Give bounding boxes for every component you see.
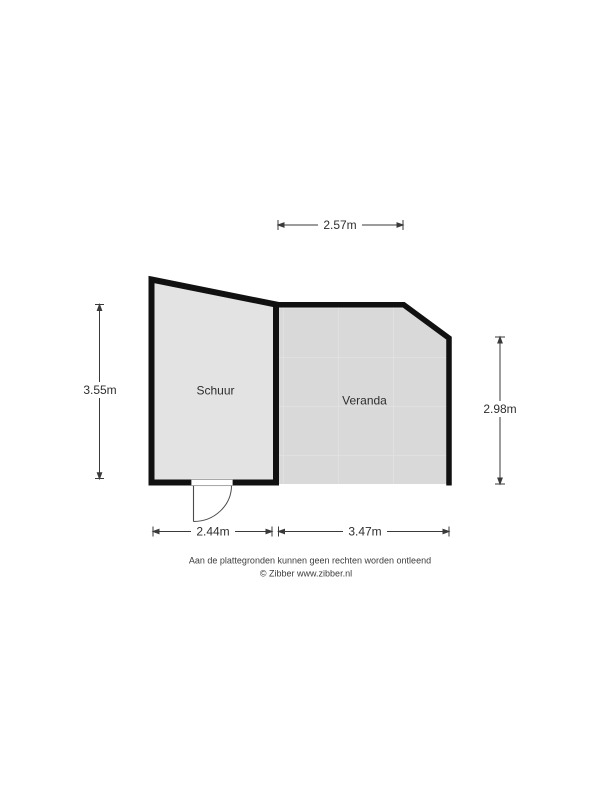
svg-text:2.98m: 2.98m [483, 402, 516, 416]
svg-text:3.55m: 3.55m [83, 383, 116, 397]
svg-text:2.57m: 2.57m [323, 218, 356, 232]
svg-text:3.47m: 3.47m [348, 525, 381, 539]
svg-text:2.44m: 2.44m [196, 525, 229, 539]
svg-text:© Zibber www.zibber.nl: © Zibber www.zibber.nl [260, 569, 352, 579]
svg-text:Schuur: Schuur [196, 384, 234, 398]
svg-text:Veranda: Veranda [342, 394, 387, 408]
svg-text:Aan de plattegronden kunnen ge: Aan de plattegronden kunnen geen rechten… [189, 556, 431, 566]
